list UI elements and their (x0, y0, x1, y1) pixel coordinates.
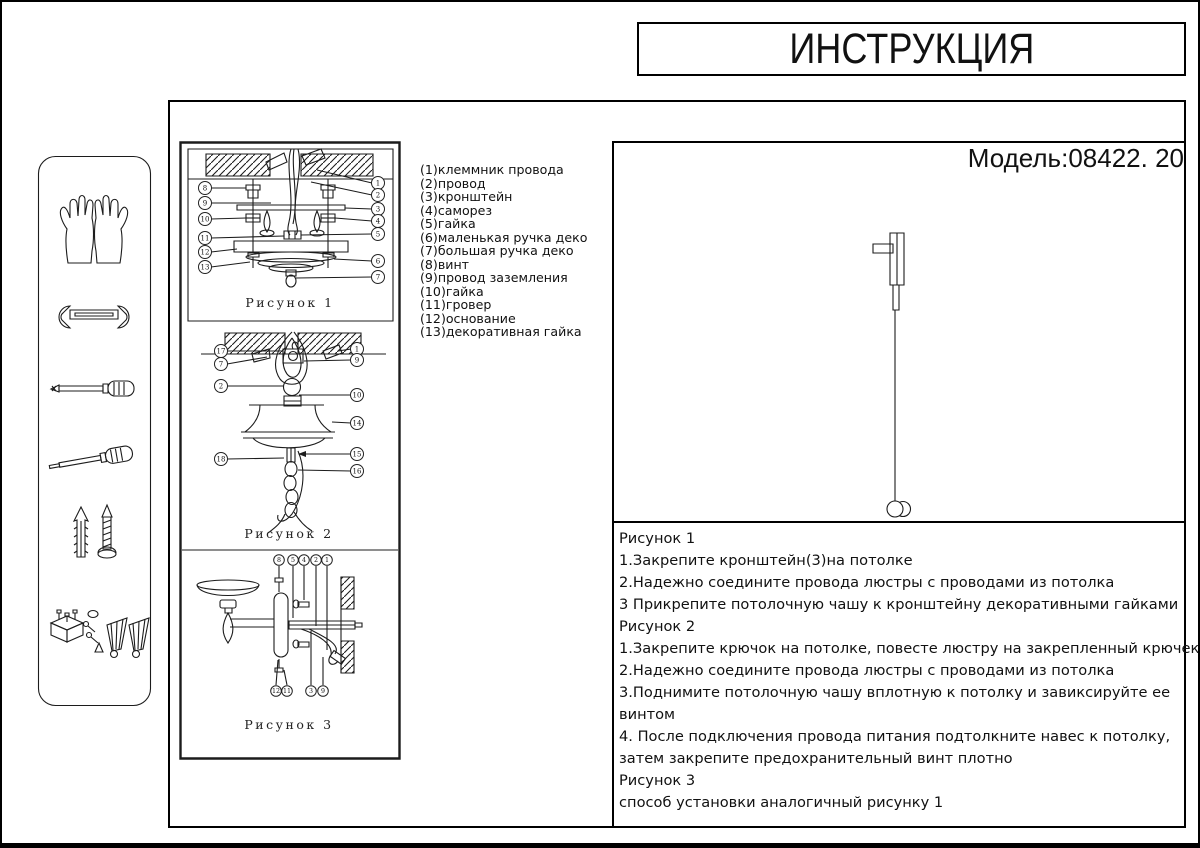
svg-text:16: 16 (353, 467, 362, 475)
svg-text:1: 1 (355, 345, 359, 353)
figure-1-caption: Рисунок 1 (245, 295, 334, 310)
parts-list-item: (1)клеммник провода (420, 163, 596, 177)
svg-text:1: 1 (325, 557, 329, 564)
svg-text:5: 5 (376, 230, 380, 238)
title-box: ИНСТРУКЦИЯ (637, 22, 1186, 76)
callout: 3 (372, 203, 385, 216)
gloves-icon (60, 196, 127, 264)
parts-list-item: (3)кронштейн (420, 190, 596, 204)
callout: 2 (372, 189, 385, 202)
instruction-line: 2.Надежно соедините провода люстры с про… (619, 572, 1184, 594)
callout: 8 (199, 182, 212, 195)
svg-text:12: 12 (201, 248, 210, 256)
instruction-line: 1.Закрепите кронштейн(3)на потолке (619, 550, 1184, 572)
callout: 4 (299, 555, 310, 566)
instruction-line: Рисунок 2 (619, 616, 1184, 638)
instruction-line: Рисунок 1 (619, 528, 1184, 550)
svg-text:11: 11 (283, 688, 291, 695)
callout: 5 (372, 228, 385, 241)
svg-text:9: 9 (321, 688, 325, 695)
instruction-line: 3 Прикрепите потолочную чашу к кронштейн… (619, 594, 1184, 616)
svg-text:10: 10 (353, 391, 362, 399)
instruction-line: 4. После подключения провода питания под… (619, 726, 1184, 748)
svg-text:9: 9 (203, 199, 207, 207)
callout: 3 (306, 686, 317, 697)
svg-text:4: 4 (376, 217, 381, 225)
callout: 15 (351, 448, 364, 461)
parts-list: (1)клеммник провода (2)провод (3)кронште… (420, 163, 596, 339)
parts-list-item: (13)декоративная гайка (420, 325, 596, 339)
instruction-line: способ установки аналогичный рисунку 1 (619, 792, 1184, 814)
callout: 18 (215, 453, 228, 466)
parts-list-item: (10)гайка (420, 285, 596, 299)
callout: 2 (215, 380, 228, 393)
callout: 12 (199, 246, 212, 259)
svg-text:8: 8 (277, 557, 281, 564)
parts-list-item: (7)большая ручка деко (420, 244, 596, 258)
parts-list-item: (6)маленькая ручка деко (420, 231, 596, 245)
callout: 17 (215, 345, 228, 358)
wrench-icon (59, 306, 129, 328)
callout: 9 (318, 686, 329, 697)
svg-text:9: 9 (355, 356, 359, 364)
callout: 6 (372, 255, 385, 268)
callout: 1 (372, 177, 385, 190)
svg-text:7: 7 (219, 360, 223, 368)
instruction-line: 3.Поднимите потолочную чашу вплотную к п… (619, 682, 1184, 704)
parts-list-item: (2)провод (420, 177, 596, 191)
callout: 2 (311, 555, 322, 566)
page-title: ИНСТРУКЦИЯ (789, 25, 1034, 74)
svg-text:11: 11 (201, 234, 210, 242)
svg-text:4: 4 (302, 557, 306, 564)
callout: 5 (288, 555, 299, 566)
parts-list-item: (4)саморез (420, 204, 596, 218)
svg-text:15: 15 (353, 450, 362, 458)
svg-text:7: 7 (376, 273, 380, 281)
model-number: Модель:08422. 20 (614, 143, 1184, 174)
instruction-line: 1.Закрепите крючок на потолке, повесте л… (619, 638, 1184, 660)
flathead-screwdriver-icon (48, 445, 133, 474)
callout: 8 (274, 555, 285, 566)
svg-text:14: 14 (353, 419, 362, 427)
callout: 10 (351, 389, 364, 402)
instruction-line: винтом (619, 704, 1184, 726)
callout: 7 (215, 358, 228, 371)
parts-list-item: (11)гровер (420, 298, 596, 312)
callout: 7 (372, 271, 385, 284)
svg-text:13: 13 (201, 263, 210, 271)
instruction-sheet: ИНСТРУКЦИЯ Модель:08422. 20 (1)клеммник … (0, 0, 1200, 848)
svg-text:6: 6 (376, 257, 381, 265)
pendant-outline-drawing (832, 202, 982, 522)
tools-panel (37, 155, 152, 707)
svg-text:3: 3 (376, 205, 380, 213)
parts-list-item: (8)винт (420, 258, 596, 272)
svg-text:10: 10 (201, 215, 210, 223)
callout: 13 (199, 261, 212, 274)
callout: 10 (199, 213, 212, 226)
parts-list-item: (9)провод заземления (420, 271, 596, 285)
callout: 9 (351, 354, 364, 367)
svg-text:5: 5 (291, 557, 295, 564)
svg-text:18: 18 (217, 455, 226, 463)
callout: 11 (282, 686, 293, 697)
instruction-line: 2.Надежно соедините провода люстры с про… (619, 660, 1184, 682)
wall-anchor-screw-icon (74, 505, 116, 558)
figure-1-drawing: 8 9 10 11 12 13 1 2 3 4 5 6 7 Рисунок 1 (188, 149, 393, 321)
figure-3-drawing: 8 5 4 2 1 12 11 3 9 Рисунок 3 (197, 555, 362, 732)
svg-text:2: 2 (219, 382, 223, 390)
instruction-line: Рисунок 3 (619, 770, 1184, 792)
figure-2-drawing: 17 7 2 18 1 9 10 14 15 16 Рисунок 2 (182, 332, 398, 550)
callout: 9 (199, 197, 212, 210)
svg-text:3: 3 (309, 688, 313, 695)
svg-text:2: 2 (314, 557, 318, 564)
parts-list-item: (12)основание (420, 312, 596, 326)
svg-text:2: 2 (376, 191, 380, 199)
callout: 1 (322, 555, 333, 566)
instructions-panel: Рисунок 1 1.Закрепите кронштейн(3)на пот… (612, 521, 1186, 828)
callout: 11 (199, 232, 212, 245)
svg-text:17: 17 (217, 347, 226, 355)
fasteners-kit-icon (51, 610, 149, 658)
parts-list-item: (5)гайка (420, 217, 596, 231)
callout: 16 (351, 465, 364, 478)
callout: 12 (271, 686, 282, 697)
svg-text:12: 12 (272, 688, 280, 695)
svg-text:1: 1 (376, 179, 380, 187)
callout: 4 (372, 215, 385, 228)
figure-2-caption: Рисунок 2 (244, 526, 333, 541)
svg-text:8: 8 (203, 184, 207, 192)
figure-3-caption: Рисунок 3 (244, 717, 333, 732)
callout: 14 (351, 417, 364, 430)
instruction-line: затем закрепите предохранительный винт п… (619, 748, 1184, 770)
phillips-screwdriver-icon (51, 381, 134, 396)
figure-panel: 8 9 10 11 12 13 1 2 3 4 5 6 7 Рисунок 1 (179, 141, 403, 761)
